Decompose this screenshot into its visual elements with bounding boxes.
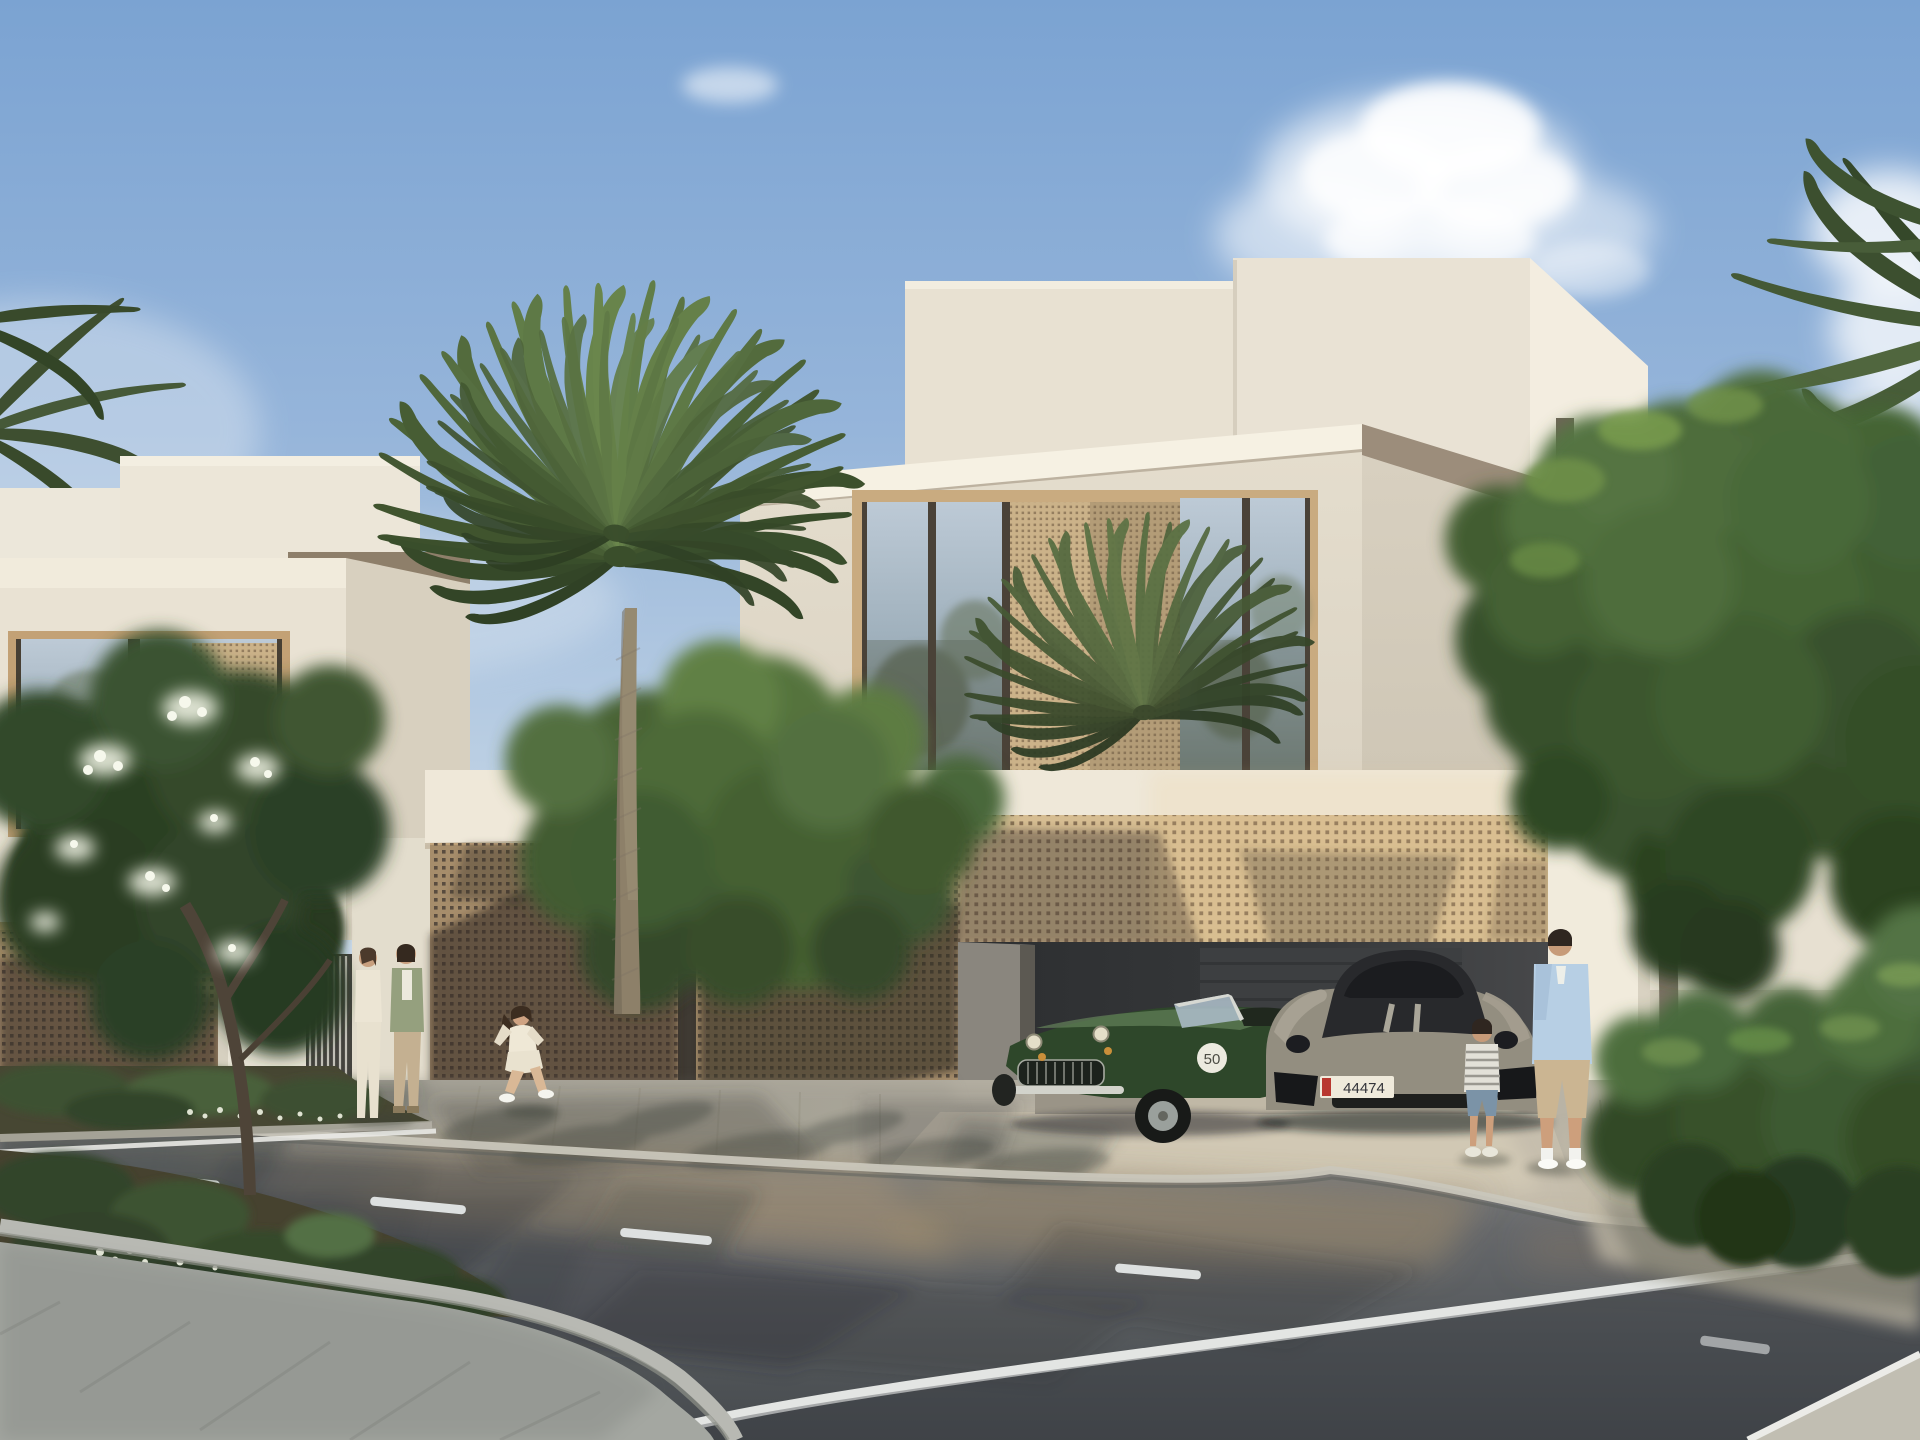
svg-text:50: 50 xyxy=(1204,1051,1221,1068)
svg-text:44474: 44474 xyxy=(1343,1080,1385,1097)
